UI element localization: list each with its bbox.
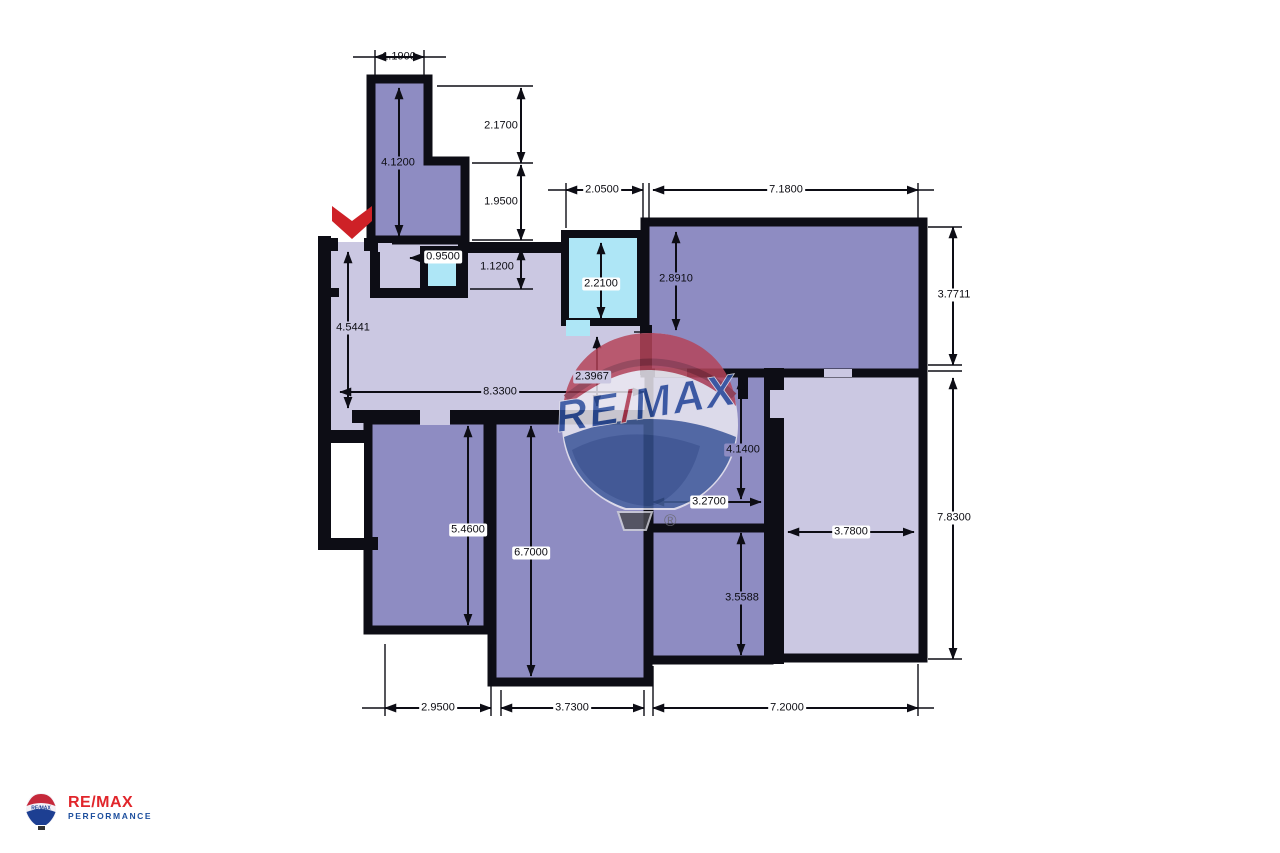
- dim-label-room-d-height: 3.5588: [723, 592, 761, 605]
- dim-label-corridor-width-top: 1.1900: [380, 51, 418, 64]
- dim-label-living-top-width: 7.1800: [767, 184, 805, 197]
- dim-label-kitchen-inner-height: 2.2100: [582, 278, 620, 291]
- footer-subtitle: PERFORMANCE: [68, 811, 152, 822]
- dim-label-room-b-bottom-width: 3.7300: [553, 702, 591, 715]
- footer-logo: RE/MAX PERFORMANCE: [22, 788, 152, 828]
- dim-label-hall-width: 8.3300: [481, 386, 519, 399]
- registered-mark: ®: [664, 511, 677, 530]
- dim-label-bottom-right-width: 7.2000: [768, 702, 806, 715]
- dim-label-hall-left-height: 4.5441: [334, 322, 372, 335]
- room-right: [779, 373, 923, 658]
- footer-wordmark: RE/MAX: [68, 794, 152, 811]
- dim-label-room-b-height: 6.7000: [512, 547, 550, 560]
- dim-label-wc-width: 0.9500: [424, 251, 462, 264]
- door-hall-bottom: [420, 407, 450, 425]
- floor-plan-page: RE/MAX ® RE/MAX 1.1900 4.1200 2.1700 1.9…: [0, 0, 1280, 853]
- door-right-room: [770, 390, 784, 418]
- dim-label-living-left-height: 2.8910: [657, 273, 695, 286]
- dim-label-corridor-length: 4.1200: [379, 157, 417, 170]
- dim-label-kitchen-top-width: 2.0500: [583, 184, 621, 197]
- dim-label-right-room-width: 3.7800: [832, 526, 870, 539]
- footer-balloon-spacer: [22, 788, 62, 828]
- dim-label-room-a-height: 5.4600: [449, 524, 487, 537]
- dim-label-wc-height: 1.1200: [478, 261, 516, 274]
- dim-label-corridor-lower-segment: 1.9500: [482, 196, 520, 209]
- dim-label-room-c-height: 4.1400: [724, 444, 762, 457]
- dim-label-right-side-height: 7.8300: [935, 512, 973, 525]
- dim-label-room-a-bottom-width: 2.9500: [419, 702, 457, 715]
- floor-plan-canvas: RE/MAX ® RE/MAX: [0, 0, 1280, 853]
- dim-label-room-c-width: 3.2700: [690, 496, 728, 509]
- dim-label-living-right-height: 3.7711: [936, 289, 973, 302]
- entrance-arrow-icon: [332, 206, 372, 239]
- balloon-basket: [618, 512, 652, 530]
- door-right-room-top: [824, 369, 852, 377]
- door-kitchen: [566, 320, 590, 336]
- dim-label-hall-right-height: 2.3967: [573, 371, 611, 384]
- dim-label-corridor-upper-segment: 2.1700: [482, 120, 520, 133]
- door-corridor: [378, 243, 392, 252]
